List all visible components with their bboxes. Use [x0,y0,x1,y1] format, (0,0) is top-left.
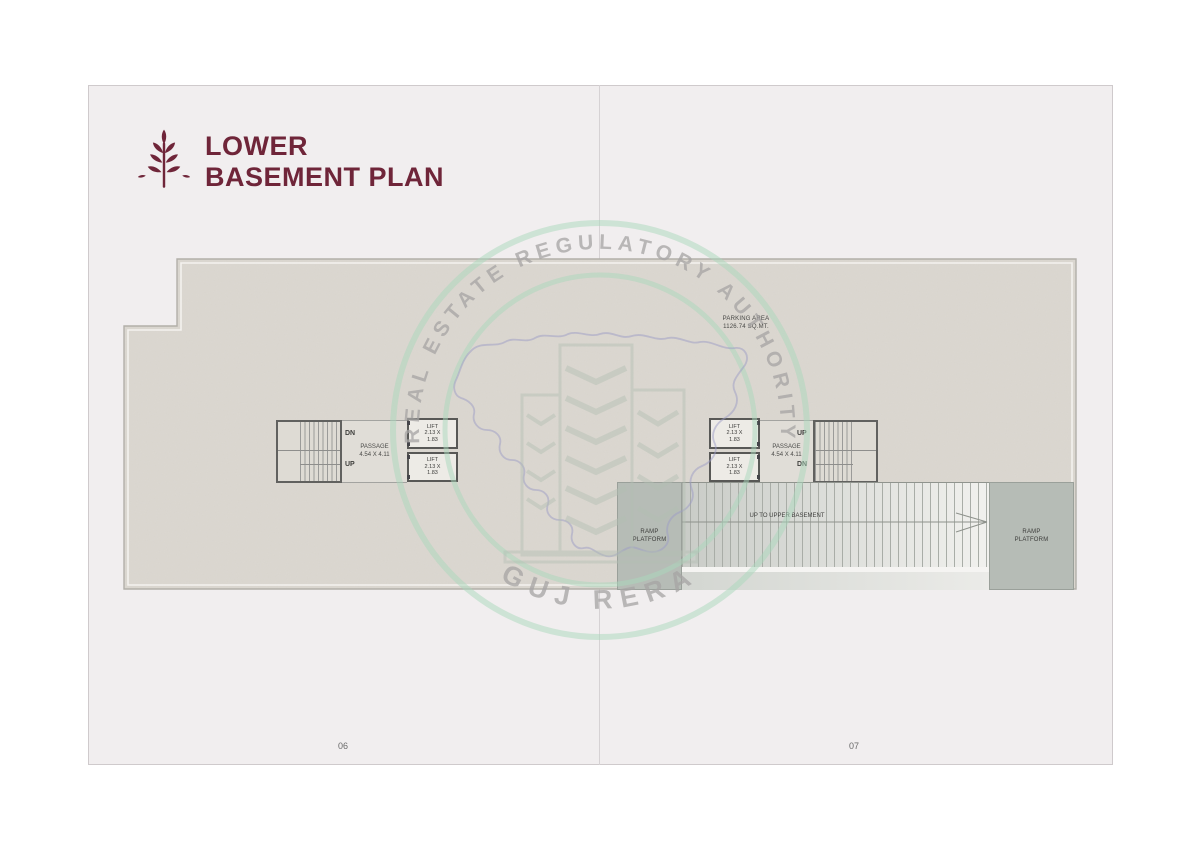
ramp-platform-label: PLATFORM [618,536,681,544]
page-title-line1: LOWER [205,131,444,162]
wheat-logo-icon [138,127,190,193]
lift-cabin: LIFT 2.13 X 1.83 [709,418,760,449]
stair-landing-line [815,464,853,465]
page-title: LOWER BASEMENT PLAN [205,131,444,193]
ramp-platform-label: RAMP [990,528,1073,536]
lift-dimension: 1.83 [409,437,456,444]
page-title-line2: BASEMENT PLAN [205,162,444,193]
staircase-left [276,420,342,483]
passage-label: PASSAGE 4.54 X 4.11 [760,443,813,459]
ramp-direction-label: UP TO UPPER BASEMENT [682,513,892,519]
lift-cabin: LIFT 2.13 X 1.83 [709,452,760,483]
ramp-platform-label: PLATFORM [990,536,1073,544]
page-number-left: 06 [338,741,348,751]
stair-up-label: UP [345,461,355,468]
passage-label: PASSAGE 4.54 X 4.11 [342,443,407,459]
staircase-right [813,420,878,483]
lift-block-left: LIFT 2.13 X 1.83 LIFT 2.13 X 1.83 [407,418,458,482]
lift-cabin: LIFT 2.13 X 1.83 [407,418,458,449]
lift-dimension: 1.83 [711,470,758,477]
lift-door-jamb [407,455,410,459]
ramp-platform-right: RAMP PLATFORM [989,482,1074,590]
passage-dimension: 4.54 X 4.11 [342,451,407,459]
page-number-right: 07 [849,741,859,751]
stair-down-label: DN [797,461,807,468]
stair-treads [300,422,340,481]
parking-area-label: PARKING AREA 1126.74 SQ.MT. [700,315,792,331]
parking-area-title: PARKING AREA [700,315,792,323]
lift-door-jamb [407,475,410,479]
lift-dimension: 1.83 [711,437,758,444]
stair-treads [815,422,853,481]
lift-cabin: LIFT 2.13 X 1.83 [407,452,458,483]
lift-door-jamb [407,421,410,425]
passage-dimension: 4.54 X 4.11 [760,451,813,459]
stair-landing-line [278,450,340,451]
parking-area-value: 1126.74 SQ.MT. [700,323,792,331]
lift-door-jamb [407,442,410,446]
stair-landing-line [300,464,340,465]
passage-title: PASSAGE [342,443,407,451]
lift-block-right: LIFT 2.13 X 1.83 LIFT 2.13 X 1.83 [709,418,760,482]
ramp-platform-label: RAMP [618,528,681,536]
passage-title: PASSAGE [760,443,813,451]
ramp-up-to-upper-basement: UP TO UPPER BASEMENT [682,482,989,590]
stair-up-label: UP [797,430,807,437]
ramp-platform-left: RAMP PLATFORM [617,482,682,590]
lift-dimension: 1.83 [409,470,456,477]
stair-landing-line [815,450,876,451]
ramp-direction-arrow [682,483,989,591]
stair-down-label: DN [345,430,355,437]
